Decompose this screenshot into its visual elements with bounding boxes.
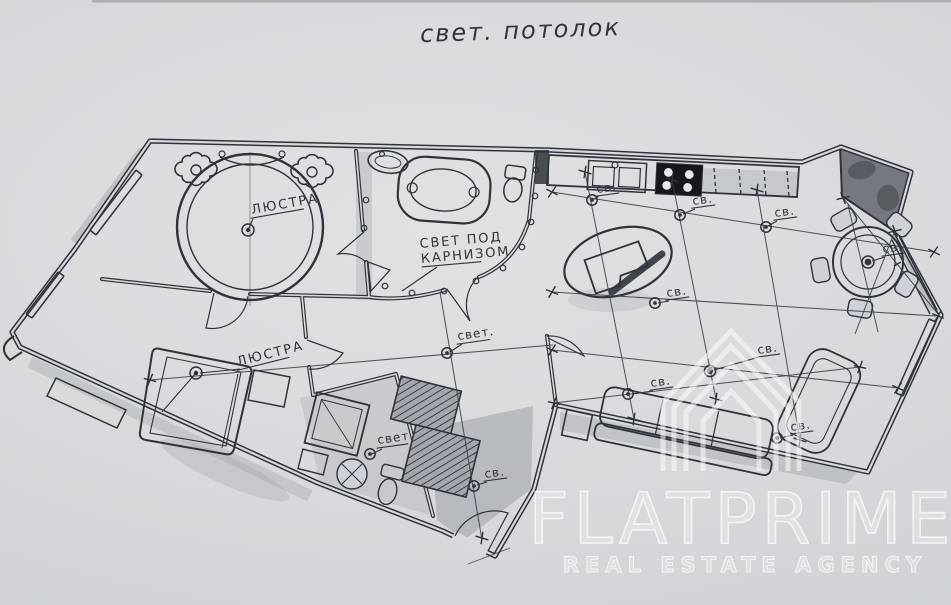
stove	[655, 163, 703, 196]
page-title: свет. потолок	[420, 13, 622, 48]
spot-label: св.	[754, 340, 780, 357]
nightstand	[248, 370, 290, 407]
spot-label: св.	[593, 179, 619, 196]
bathroom	[361, 148, 539, 295]
chandelier-label-bedroom: ЛЮСТРА	[233, 339, 305, 371]
hall-light-label: свет.	[454, 324, 495, 344]
bathtub	[396, 155, 492, 225]
light-marker	[862, 256, 874, 268]
windows	[26, 170, 937, 396]
spot-label: св.	[663, 283, 689, 300]
chandelier-label-top: ЛЮСТРА	[248, 191, 320, 218]
washing-machine	[337, 459, 367, 489]
floor-plan-photo: свет. потолок	[0, 0, 951, 605]
spot-label: св.	[771, 203, 797, 220]
spot-label: св.	[647, 373, 673, 390]
cornice-light-label: СВЕТ ПОД КАРНИЗОМ	[419, 229, 511, 267]
floor-plan-sketch: свет. потолок	[0, 0, 951, 605]
bath-sink	[367, 148, 410, 175]
spot-label: св.	[481, 464, 507, 481]
paper-edge	[92, 0, 951, 3]
spot-label: св.	[689, 191, 715, 208]
light-marker	[761, 222, 771, 232]
watermark-brand: FLATPRIME	[528, 478, 951, 560]
bath-toilet	[501, 165, 526, 203]
ornament-left	[175, 153, 217, 186]
chandelier-marker-top	[242, 224, 254, 236]
chandelier-label-bedroom-text: ЛЮСТРА	[235, 339, 305, 370]
spot-label: св.	[879, 239, 905, 256]
chandelier-label-top-text: ЛЮСТРА	[250, 191, 320, 218]
watermark-subtitle: REAL ESTATE AGENCY	[563, 553, 927, 577]
